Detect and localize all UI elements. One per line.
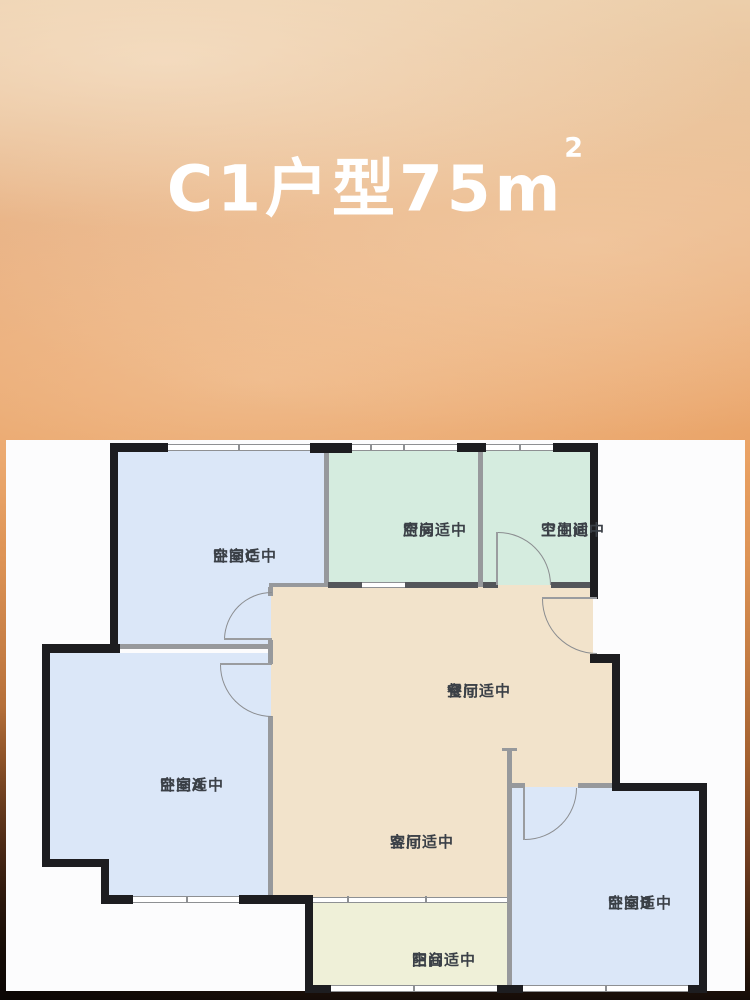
wall-segment xyxy=(42,644,120,653)
room-note: 空间适中 xyxy=(447,681,511,701)
wall-segment xyxy=(478,450,483,587)
room-note: 空间适中 xyxy=(160,775,224,795)
window-kitchen-pass xyxy=(362,582,405,588)
door-leaf-bedroom-b xyxy=(523,788,525,840)
wall-segment xyxy=(699,783,707,993)
room-note: 空间适中 xyxy=(390,832,454,852)
wall-segment xyxy=(405,582,447,588)
wall-segment xyxy=(42,646,50,867)
door-leaf-bedroom-c xyxy=(224,638,272,640)
room-dining-fill-mid xyxy=(271,660,616,787)
wall-segment xyxy=(269,583,328,587)
wall-segment xyxy=(497,985,523,993)
wall-segment xyxy=(310,443,352,453)
wall-segment xyxy=(118,644,269,649)
wall-segment xyxy=(502,748,517,751)
window-tick xyxy=(186,896,188,903)
wall-segment xyxy=(239,895,313,904)
wall-segment xyxy=(457,443,486,452)
wall-segment xyxy=(551,582,593,588)
page-background: C1户型75m2 xyxy=(0,0,750,1000)
room-balcony-fill xyxy=(311,902,511,989)
sliding-door-living-balcony xyxy=(313,897,508,903)
room-note: 空间适中 xyxy=(213,546,277,566)
window-tick xyxy=(605,985,607,992)
window-tick xyxy=(347,896,349,903)
room-note: 空间适中 xyxy=(608,893,672,913)
floor-plan: 卧室C 空间适中 厨房 空间适中 卫生间 空间适中 餐厅 空间适中 卧室A 空间… xyxy=(0,0,750,1000)
wall-segment xyxy=(42,859,109,867)
wall-segment xyxy=(324,450,329,587)
window-tick xyxy=(519,444,521,451)
wall-segment xyxy=(110,443,168,452)
wall-segment xyxy=(447,582,478,588)
wall-segment xyxy=(612,783,707,791)
wall-segment xyxy=(328,582,362,588)
door-leaf-entry xyxy=(542,597,597,599)
door-leaf-bedroom-a xyxy=(220,663,272,665)
wall-segment xyxy=(578,783,612,788)
wall-segment xyxy=(612,654,620,790)
wall-segment xyxy=(305,896,313,993)
room-kitchen-fill xyxy=(328,446,481,587)
room-note: 空间适中 xyxy=(403,520,467,540)
wall-segment xyxy=(110,443,118,653)
wall-segment xyxy=(268,716,273,898)
room-note: 空间适中 xyxy=(541,520,605,540)
window-tick xyxy=(413,985,415,992)
window-tick xyxy=(370,444,372,451)
window-tick xyxy=(238,444,240,451)
window-tick xyxy=(403,444,405,451)
room-note: 空间适中 xyxy=(412,950,476,970)
door-leaf-bathroom xyxy=(496,532,498,585)
window-tick xyxy=(425,896,427,903)
wall-segment xyxy=(688,985,707,993)
